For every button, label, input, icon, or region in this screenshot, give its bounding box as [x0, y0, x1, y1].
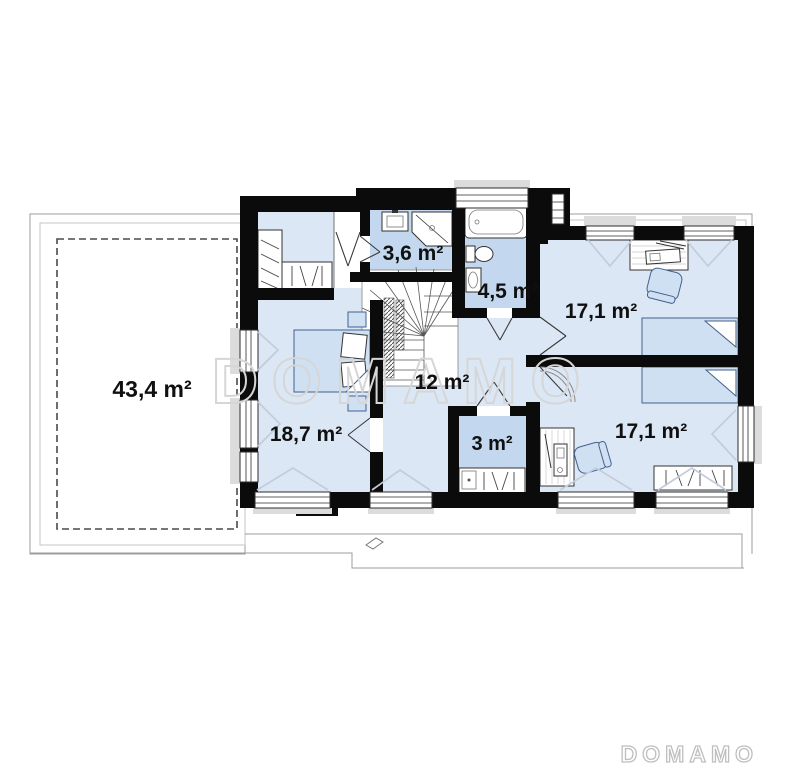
room-label-bedroom-top-right: 17,1 m² — [565, 300, 637, 323]
desk-icon — [540, 428, 574, 486]
brand-logo: DOMAMO — [621, 741, 758, 767]
room-label-hall: 12 m² — [415, 371, 470, 394]
wardrobe-icon — [459, 468, 525, 494]
window — [558, 492, 634, 508]
vent-window — [552, 194, 564, 224]
window — [586, 226, 634, 240]
window — [456, 188, 528, 208]
window — [684, 226, 734, 240]
wardrobe-tall-icon — [258, 230, 282, 294]
floor-plan-canvas: DOMAMO 43,4 m² 3,6 m² 4,5 m² 17,1 m² 12 … — [0, 0, 800, 770]
room-label-bathroom: 4,5 m² — [478, 280, 539, 303]
window — [240, 452, 258, 482]
single-bed-icon — [642, 318, 738, 356]
room-label-wardrobe-closet: 3 m² — [471, 433, 512, 455]
floor-plan-svg: DOMAMO 43,4 m² 3,6 m² 4,5 m² 17,1 m² 12 … — [0, 0, 800, 770]
watermark-text: DOMAMO — [212, 345, 595, 417]
toilet-icon — [466, 246, 493, 262]
window — [656, 492, 728, 508]
wardrobe-low-icon — [282, 262, 332, 290]
single-bed-icon — [642, 367, 738, 403]
window — [738, 406, 754, 462]
room-label-terrace: 43,4 m² — [112, 376, 192, 402]
window — [370, 492, 432, 508]
room-label-bedroom-bottom-right: 17,1 m² — [615, 420, 687, 443]
bathtub-icon — [465, 206, 527, 238]
washbasin-icon — [382, 209, 408, 231]
window — [255, 492, 330, 508]
desk-icon — [630, 240, 688, 270]
room-label-bathroom-small: 3,6 m² — [383, 242, 444, 265]
chimney-icon — [366, 538, 383, 549]
nightstand-icon — [348, 312, 366, 327]
room-label-bedroom-left: 18,7 m² — [270, 423, 342, 446]
